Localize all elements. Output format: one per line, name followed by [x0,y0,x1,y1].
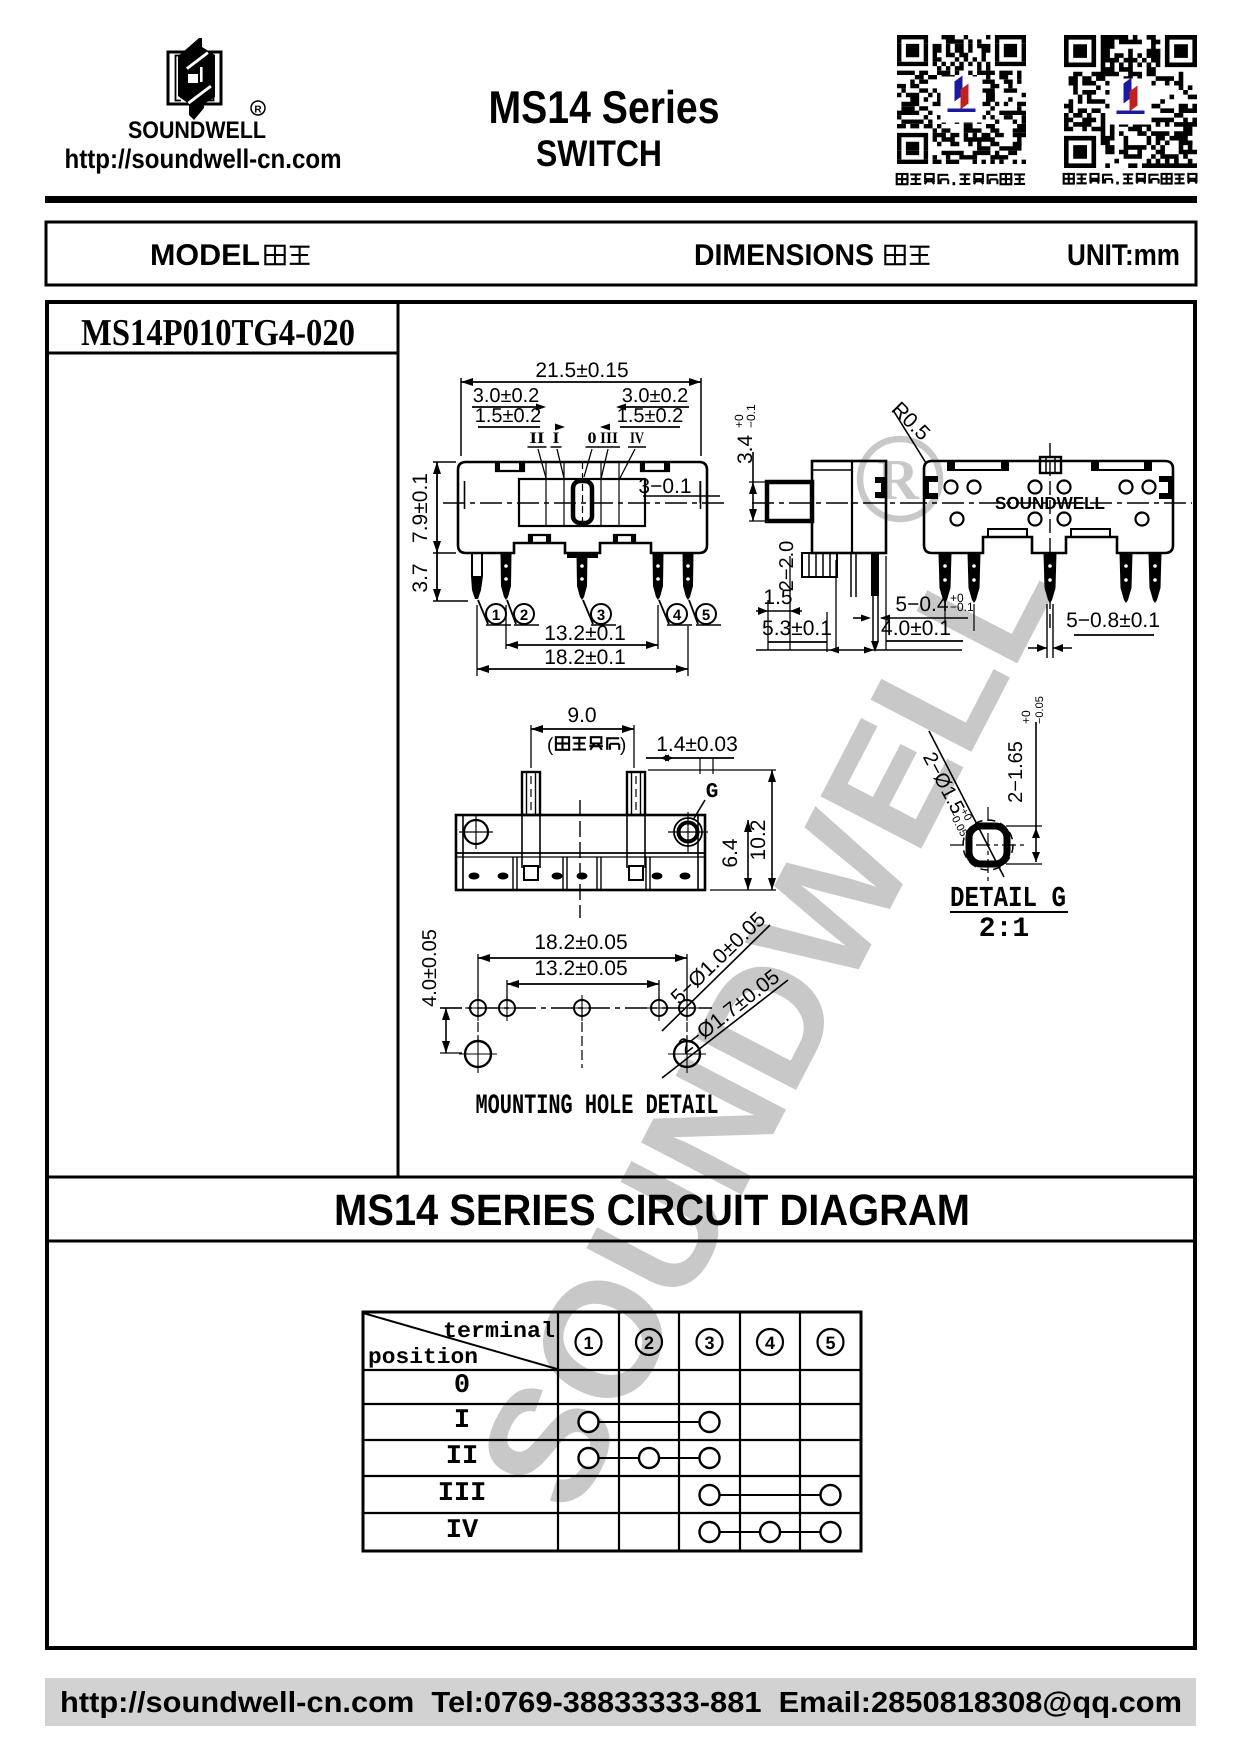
svg-text:4.0±0.1: 4.0±0.1 [881,617,951,640]
svg-text:0: 0 [454,1371,470,1401]
svg-text:terminal: terminal [443,1319,555,1344]
svg-text:III: III [438,1479,487,1509]
svg-text:UNIT:mm: UNIT:mm [1067,239,1180,272]
svg-text:MS14P010TG4-020: MS14P010TG4-020 [81,312,355,354]
svg-text:10.2: 10.2 [747,820,770,861]
svg-text:+0: +0 [1019,710,1033,724]
svg-text:5: 5 [702,607,710,624]
svg-text:4: 4 [765,1333,775,1353]
svg-text:−0.05: −0.05 [1034,696,1046,724]
svg-text:1: 1 [583,1333,593,1353]
svg-text:18.2±0.1: 18.2±0.1 [544,646,626,669]
svg-text:SWITCH: SWITCH [536,133,662,174]
svg-text:3−0.1: 3−0.1 [638,475,691,498]
svg-text:5−0.4: 5−0.4 [895,593,948,616]
svg-text:(: ( [547,735,554,756]
svg-text:1: 1 [492,607,500,624]
svg-text:II: II [530,430,545,447]
svg-text:R: R [254,105,262,116]
svg-text:−0.1: −0.1 [744,404,758,428]
svg-text:IV: IV [630,430,644,447]
svg-text:3.0±0.2: 3.0±0.2 [473,385,540,407]
svg-text:MS14 SERIES CIRCUIT DIAGRAM: MS14 SERIES CIRCUIT DIAGRAM [334,1186,970,1235]
svg-text:7.9±0.1: 7.9±0.1 [409,473,432,543]
svg-text:9.0: 9.0 [567,704,596,727]
svg-text:5.3±0.1: 5.3±0.1 [762,617,832,640]
svg-text:I: I [553,430,560,447]
svg-text:I: I [454,1406,470,1436]
svg-text:1.5±0.2: 1.5±0.2 [617,405,684,427]
svg-text:): ) [620,735,626,756]
svg-text:21.5±0.15: 21.5±0.15 [535,359,628,382]
svg-text:5: 5 [825,1333,835,1353]
svg-text:DETAIL G: DETAIL G [950,882,1066,915]
svg-text:position: position [368,1345,478,1370]
svg-text:2: 2 [644,1333,654,1353]
svg-text:MODEL: MODEL [150,239,260,272]
svg-text:18.2±0.05: 18.2±0.05 [534,931,627,954]
svg-text:0: 0 [588,430,597,447]
svg-text:IV: IV [446,1516,479,1546]
svg-text:4: 4 [673,607,682,624]
svg-text:2:1: 2:1 [979,914,1029,945]
svg-text:G: G [706,781,719,804]
svg-text:3.7: 3.7 [409,563,432,592]
svg-text:13.2±0.05: 13.2±0.05 [534,957,627,980]
svg-text:3.0±0.2: 3.0±0.2 [622,385,689,407]
svg-text:MS14 Series: MS14 Series [489,81,720,133]
svg-text:SOUNDWELL: SOUNDWELL [128,117,266,144]
svg-text:1.5±0.2: 1.5±0.2 [475,405,542,427]
svg-text:2−2.0: 2−2.0 [776,541,798,592]
svg-text:4.0±0.05: 4.0±0.05 [419,929,441,1007]
svg-text:III: III [600,430,618,447]
svg-text:1.4±0.03: 1.4±0.03 [656,733,738,756]
svg-text:II: II [446,1442,478,1472]
svg-text:MOUNTING HOLE DETAIL: MOUNTING HOLE DETAIL [476,1091,719,1122]
svg-text:6.4: 6.4 [719,838,742,868]
svg-text:5−0.8±0.1: 5−0.8±0.1 [1066,609,1160,632]
svg-text:DIMENSIONS: DIMENSIONS [694,239,874,272]
svg-text:3: 3 [704,1333,714,1353]
svg-text:http://soundwell-cn.com: http://soundwell-cn.com [65,144,342,174]
svg-text:2: 2 [520,607,528,624]
svg-text:−0.1: −0.1 [950,600,974,614]
svg-text:2−1.65: 2−1.65 [1005,741,1027,803]
svg-text:http://soundwell-cn.com Tel:0: http://soundwell-cn.com Tel:0769-3883333… [60,1687,1182,1719]
svg-text:13.2±0.1: 13.2±0.1 [544,622,626,645]
